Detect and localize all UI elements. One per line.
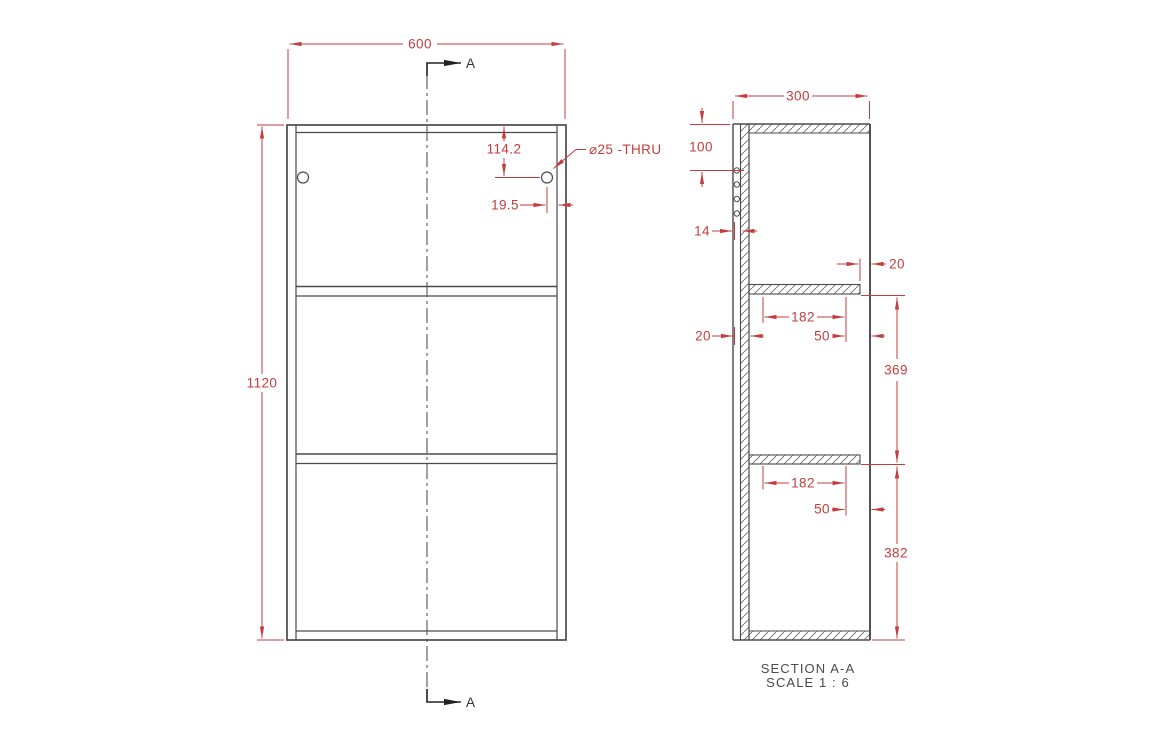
section-scale: SCALE 1 : 6 [766,675,850,690]
section-view-dimensions [690,96,905,640]
front-view-dimensions [257,44,586,640]
section-caption: SECTION A-A [761,661,855,676]
top-panel-hatch [749,124,870,133]
dim-section-depth: 300 [786,89,810,104]
side-panel-hatch [741,124,750,640]
dim-bottom-gap: 382 [884,546,908,561]
shelf1-hatch [749,285,860,295]
dim-shelf1-pin-spacing: 182 [791,310,815,325]
dim-panel-thickness: 20 [695,329,711,344]
pin-hole-2 [734,182,739,187]
front-view [287,74,566,697]
leader-line [554,150,587,169]
drawing-svg: A A 600 1120 114.2 19.5 ⌀25 -THRU [0,0,1156,742]
dim-front-height: 1120 [247,376,278,391]
dim-hole-top: 100 [689,140,713,155]
section-cut-arrows [427,63,461,702]
cad-drawing-sheet: A A 600 1120 114.2 19.5 ⌀25 -THRU [0,0,1156,742]
dim-shelf1-front-gap: 50 [814,329,830,344]
pin-hole-3 [734,196,739,201]
bottom-panel-hatch [749,631,870,640]
dim-shelf-gap: 369 [884,363,908,378]
hole-callout: ⌀25 -THRU [589,142,661,157]
dim-hole-side-offset: 19.5 [491,198,519,213]
pin-hole-4 [734,211,739,216]
section-arrow-bottom-line [427,689,461,702]
section-label-bottom: A [466,695,476,710]
section-view [733,124,870,640]
right-hole [542,172,553,183]
dim-shelf2-pin-spacing: 182 [791,476,815,491]
dim-front-width: 600 [408,37,432,52]
left-hole [298,172,309,183]
dim-hole-top-offset: 114.2 [487,142,522,157]
section-label-top: A [466,56,476,71]
dim-hole-depth: 14 [694,224,710,239]
shelf2-hatch [749,455,860,464]
dim-shelf2-front-gap: 50 [814,502,830,517]
dim-shelf1-rear-gap: 20 [889,257,905,272]
section-arrow-top-line [427,63,461,76]
